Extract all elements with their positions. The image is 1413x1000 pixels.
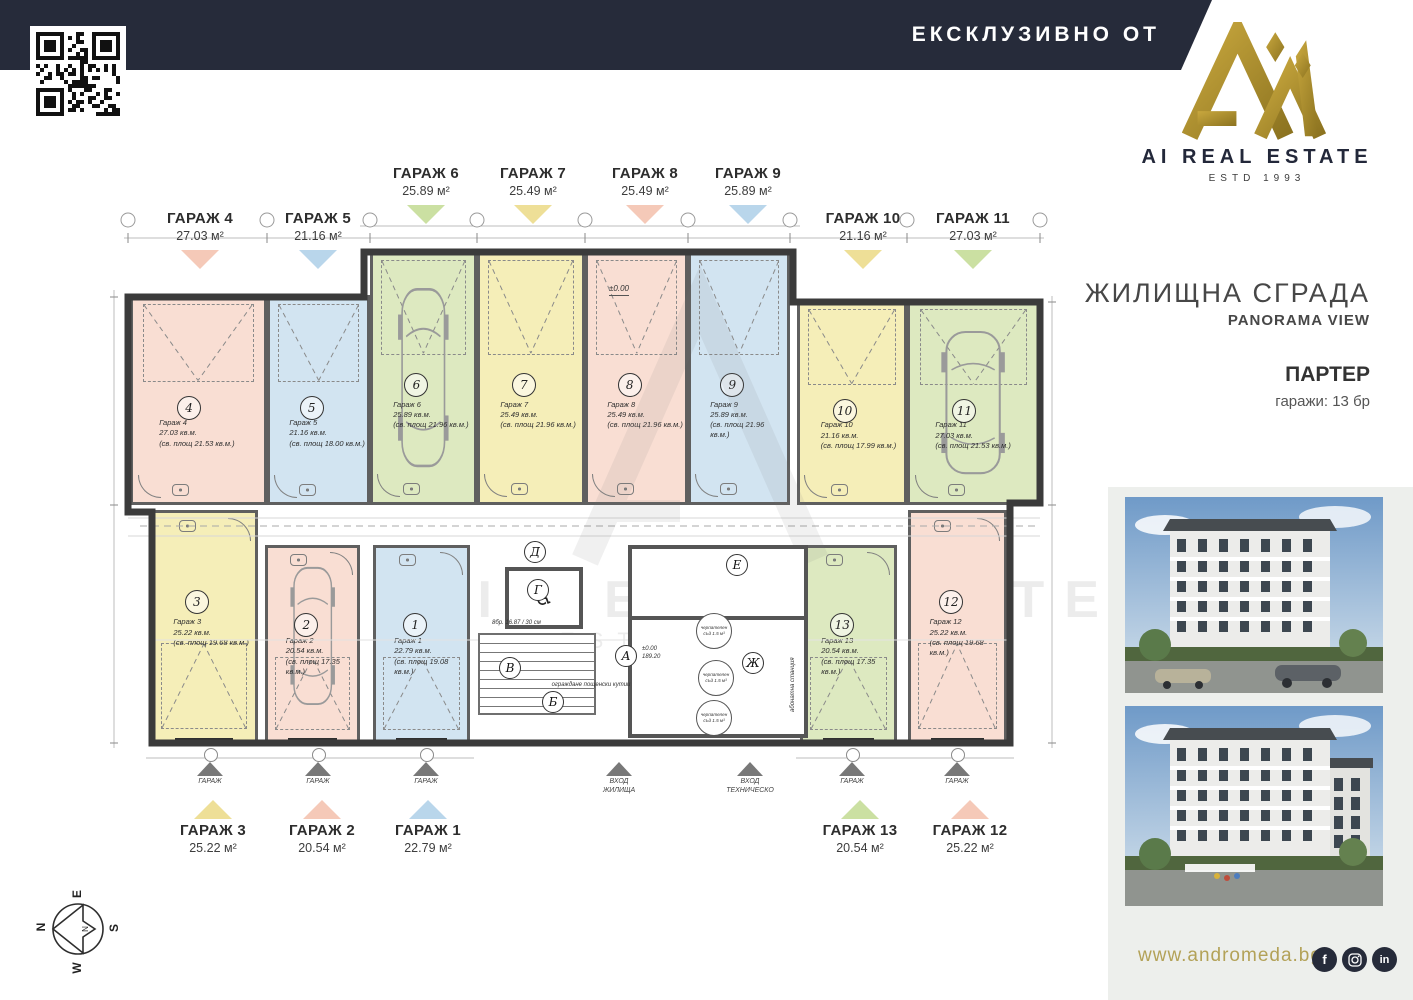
garage-entry-label: ГАРАЖ [180, 778, 240, 787]
garage-inner-label: Гараж 122.79 кв.м.(св. площ 19.08 кв.м.) [394, 636, 465, 677]
svg-text:S: S [107, 924, 121, 932]
room-letter-Ж: Ж [742, 652, 764, 674]
garage-number: 5 [300, 396, 324, 420]
garage-cell-12: 12Гараж 1225.22 кв.м.(св. площ 19.68 кв.… [908, 510, 1007, 743]
sanitary-fixture [179, 520, 196, 532]
garage-cell-5: 5Гараж 521.16 кв.м.(св. площ 18.00 кв.м.… [267, 295, 370, 505]
garage-entry-arrow-icon [305, 762, 331, 776]
water-tank: черпателен съд 1.5 м³ [696, 613, 732, 649]
sanitary-fixture [934, 520, 951, 532]
axis-marker [951, 748, 965, 762]
garage-name: ГАРАЖ 13 [785, 822, 935, 839]
garage-door-swing [278, 304, 360, 381]
garage-number: 11 [952, 399, 976, 423]
room-letter-Г: Г [527, 579, 549, 601]
garage-cell-13: 13Гараж 1320.54 кв.м.(св. площ 17.35 кв.… [800, 545, 897, 743]
garage-door [712, 249, 766, 255]
garage-cell-6: 6Гараж 625.89 кв.м.(св. площ 21.96 кв.м.… [370, 250, 477, 505]
garage-door [823, 299, 881, 305]
direction-arrow-icon [303, 800, 341, 819]
garage-number: 9 [720, 373, 744, 397]
axis-marker [204, 748, 218, 762]
garage-inner-label: Гараж 1021.16 кв.м.(св. площ 17.99 кв.м.… [821, 420, 902, 450]
garage-number: 13 [830, 613, 854, 637]
garage-door [396, 738, 447, 744]
garage-cell-3: 3Гараж 325.22 кв.м.(св. площ 19.68 кв.м.… [150, 510, 258, 743]
garage-door [931, 738, 983, 744]
sanitary-fixture [172, 484, 189, 496]
garage-number: 3 [185, 590, 209, 614]
garage-entry-label: ГАРАЖ [822, 778, 882, 787]
garage-entry-arrow-icon [413, 762, 439, 776]
garage-door-swing [488, 260, 574, 354]
door-arc [915, 475, 938, 498]
garage-inner-label: Гараж 1225.22 кв.м.(св. площ 19.68 кв.м.… [930, 617, 1003, 658]
direction-arrow-icon [951, 800, 989, 819]
garage-inner-label: Гараж 521.16 кв.м.(св. площ 18.00 кв.м.) [289, 418, 365, 448]
garage-door [288, 738, 338, 744]
garage-door [175, 738, 232, 744]
garage-number: 8 [618, 373, 642, 397]
garage-inner-label: Гараж 427.03 кв.м.(св. площ 21.53 кв.м.) [159, 418, 261, 448]
garage-inner-label: Гараж 220.54 кв.м.(св. площ 17.35 кв.м.) [286, 636, 355, 677]
door-arc [377, 474, 400, 497]
car-outline [935, 327, 1011, 478]
garage-door [502, 249, 559, 255]
garage-name: ГАРАЖ 3 [138, 822, 288, 839]
room-letter-Б: Б [542, 691, 564, 713]
garage-label-13: ГАРАЖ 1320.54 м² [785, 793, 935, 855]
garage-number: 6 [404, 373, 428, 397]
garage-cell-8: 8Гараж 825.49 кв.м.(св. площ 21.96 кв.м.… [585, 250, 688, 505]
direction-arrow-icon [407, 205, 445, 224]
room-letter-Е: Е [726, 554, 748, 576]
direction-arrow-icon [181, 250, 219, 269]
entrance-arrow-icon [737, 762, 763, 776]
direction-arrow-icon [729, 205, 767, 224]
garage-entry-label: ГАРАЖ [288, 778, 348, 787]
garage-inner-label: Гараж 625.89 кв.м.(св. площ 21.96 кв.м.) [393, 400, 472, 430]
room-e [628, 545, 808, 620]
garage-cell-10: 10Гараж 1021.16 кв.м.(св. площ 17.99 кв.… [797, 300, 907, 505]
garage-inner-label: Гараж 1127.03 кв.м.(св. площ 21.53 кв.м.… [935, 420, 1034, 450]
door-arc [274, 475, 297, 498]
door-arc [867, 552, 890, 575]
stairs-note: 8бр. 16.87 / 30 см [492, 620, 582, 628]
garage-entry-arrow-icon [944, 762, 970, 776]
sanitary-fixture [720, 483, 737, 495]
garage-area: 27.03 м² [898, 229, 1048, 243]
garage-door [291, 294, 345, 300]
garage-door [395, 249, 452, 255]
garage-cell-9: 9Гараж 925.89 кв.м.(св. площ 21.96 кв.м.… [688, 250, 790, 505]
direction-arrow-icon [626, 205, 664, 224]
garage-cell-11: 11Гараж 1127.03 кв.м.(св. площ 21.53 кв.… [907, 300, 1040, 505]
direction-arrow-icon [299, 250, 337, 269]
door-arc [484, 474, 507, 497]
garage-area: 25.22 м² [138, 841, 288, 855]
water-tank: черпателен съд 1.5 м³ [696, 700, 732, 736]
garage-door-swing [143, 304, 253, 381]
garage-door [609, 249, 663, 255]
axis-marker [846, 748, 860, 762]
garage-number: 12 [939, 590, 963, 614]
garage-entry-arrow-icon [197, 762, 223, 776]
garage-label-11: ГАРАЖ 1127.03 м² [898, 210, 1048, 272]
sanitary-fixture [403, 483, 420, 495]
water-tank: черпателен съд 1.5 м³ [698, 660, 734, 696]
brochure-page: ЕКСКЛУЗИВНО ОТ AI REAL ESTATE ESTD 1993 … [0, 0, 1413, 1000]
sanitary-fixture [399, 554, 416, 566]
staircase [478, 633, 596, 715]
garage-label-3: ГАРАЖ 325.22 м² [138, 793, 288, 855]
sanitary-fixture [511, 483, 528, 495]
svg-text:W: W [70, 962, 84, 974]
garage-door [938, 299, 1009, 305]
svg-text:N: N [81, 926, 90, 932]
room-letter-В: В [499, 657, 521, 679]
garage-door-swing [699, 260, 780, 354]
svg-text:N: N [35, 923, 48, 932]
garage-number: 10 [833, 399, 857, 423]
garage-door [823, 738, 874, 744]
garage-entry-arrow-icon [839, 762, 865, 776]
door-arc [440, 552, 463, 575]
garage-name: ГАРАЖ 11 [898, 210, 1048, 227]
garage-door-swing [808, 309, 895, 385]
garage-inner-label: Гараж 1320.54 кв.м.(св. площ 17.35 кв.м.… [821, 636, 892, 677]
substation-label: абонатна станция [790, 657, 798, 712]
door-arc [228, 518, 251, 541]
direction-arrow-icon [194, 800, 232, 819]
sanitary-fixture [948, 484, 965, 496]
direction-arrow-icon [514, 205, 552, 224]
door-arc [138, 475, 161, 498]
garage-cell-4: 4Гараж 427.03 кв.м.(св. площ 21.53 кв.м.… [130, 295, 267, 505]
garage-area: 20.54 м² [785, 841, 935, 855]
compass-rose: E N S W N [35, 885, 121, 977]
garage-inner-label: Гараж 325.22 кв.м.(св. площ 19.68 кв.м.) [173, 617, 253, 647]
entrance-arrow-icon [606, 762, 632, 776]
garage-inner-label: Гараж 725.49 кв.м.(св. площ 21.96 кв.м.) [500, 400, 580, 430]
door-arc [977, 518, 1000, 541]
door-arc [804, 475, 827, 498]
garage-area: 21.16 м² [243, 229, 393, 243]
direction-arrow-icon [844, 250, 882, 269]
level-mark-top: ±0.00 [609, 284, 629, 296]
entrance-label: ВХОДЖИЛИЩА [579, 778, 659, 796]
door-arc [592, 474, 615, 497]
axis-marker [420, 748, 434, 762]
garage-name: ГАРАЖ 9 [673, 165, 823, 182]
direction-arrow-icon [409, 800, 447, 819]
garage-area: 25.89 м² [673, 184, 823, 198]
sanitary-fixture [299, 484, 316, 496]
garage-cell-7: 7Гараж 725.49 кв.м.(св. площ 21.96 кв.м.… [477, 250, 585, 505]
garage-entry-label: ГАРАЖ [927, 778, 987, 787]
sanitary-fixture [617, 483, 634, 495]
garage-inner-label: Гараж 925.89 кв.м.(св. площ 21.96 кв.м.) [710, 400, 785, 441]
entrance-label: ВХОДТЕХНИЧЕСКО [710, 778, 790, 796]
level-mark-core: ±0.00189.20 [642, 646, 660, 662]
svg-text:E: E [70, 890, 84, 898]
garage-inner-label: Гараж 825.49 кв.м.(св. площ 21.96 кв.м.) [607, 400, 683, 430]
floorplan: 1Гараж 122.79 кв.м.(св. площ 19.08 кв.м.… [0, 0, 1413, 1000]
garage-number: 7 [512, 373, 536, 397]
garage-number: 4 [177, 396, 201, 420]
room-letter-А: А [615, 645, 637, 667]
garage-door-swing [161, 643, 247, 729]
garage-door-swing [596, 260, 678, 354]
mailboxes-label: ограждане пощенски кутии [548, 682, 634, 690]
sanitary-fixture [831, 484, 848, 496]
garage-door [162, 294, 235, 300]
axis-marker [312, 748, 326, 762]
garage-cell-2: 2Гараж 220.54 кв.м.(св. площ 17.35 кв.м.… [265, 545, 360, 743]
garage-cell-1: 1Гараж 122.79 кв.м.(св. площ 19.08 кв.м.… [373, 545, 470, 743]
garage-number: 1 [403, 613, 427, 637]
garage-entry-label: ГАРАЖ [396, 778, 456, 787]
room-letter-Д: Д [524, 541, 546, 563]
direction-arrow-icon [954, 250, 992, 269]
direction-arrow-icon [841, 800, 879, 819]
door-arc [695, 474, 718, 497]
sanitary-fixture [826, 554, 843, 566]
